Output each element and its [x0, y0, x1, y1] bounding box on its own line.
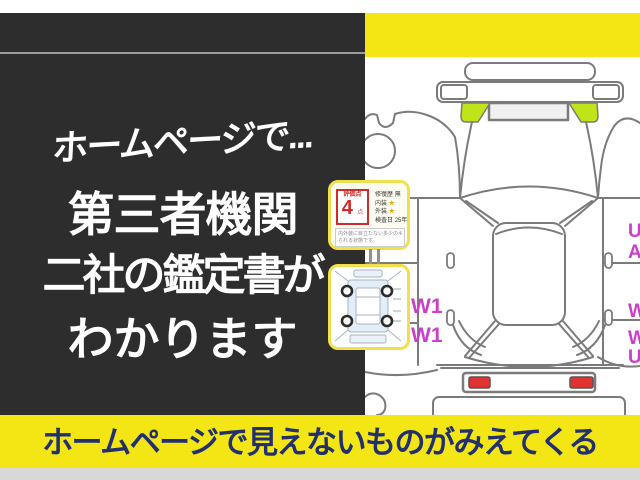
- hood-rear-arc: [460, 187, 598, 199]
- damage-mark-u-top: U: [628, 221, 640, 242]
- hood-edge-right: [586, 122, 598, 198]
- front-bumper-top: [465, 63, 595, 80]
- headlight-left: [441, 85, 467, 99]
- rating-row-interior: 内装 ★: [375, 200, 409, 209]
- score-unit: 点: [357, 210, 363, 216]
- mini-roof: [356, 288, 380, 324]
- headline-line-4: わかります: [0, 303, 365, 369]
- rating-row-exterior: 外装 ★: [375, 208, 409, 217]
- rating-certificate-card: 評価点 4 点 修復歴 無 内装 ★ 外装 ★ 検査日 25年 内外装に目立たな…: [328, 180, 410, 250]
- mini-wheel-rl: [342, 316, 352, 326]
- damage-mark-w1-upper: W1: [411, 295, 443, 318]
- a-pillar-left-2: [466, 201, 498, 223]
- mini-rear-bumper: [350, 335, 386, 343]
- condition-note-line2: られる状態です。: [338, 238, 402, 245]
- a-pillar-left: [460, 198, 493, 226]
- rating-rows: 修復歴 無 内装 ★ 外装 ★ 検査日 25年: [375, 191, 409, 225]
- headline-line-3: 二社の鑑定書が: [0, 241, 365, 303]
- damage-mark-w-1: W: [628, 301, 640, 322]
- score-value: 4: [342, 197, 353, 219]
- mini-front-bumper: [354, 270, 382, 277]
- rear-bumper: [433, 397, 625, 415]
- tail-light-left: [469, 377, 490, 388]
- fender-right: [598, 118, 640, 198]
- door-handle-left-front: [447, 253, 454, 268]
- mini-wheel-fl: [342, 286, 352, 296]
- hood-edge-left: [460, 122, 472, 198]
- roof-panel: [493, 223, 565, 325]
- door-handle-right-front: [605, 253, 612, 268]
- c-pillar-right: [563, 321, 593, 356]
- a-pillar-right-2: [560, 201, 592, 223]
- score-box: 評価点 4 点: [336, 189, 369, 225]
- card-connector-right: [377, 249, 380, 265]
- rocker-wave-left: [365, 370, 437, 375]
- condition-note-line1: 内外装に目立たない多少のキズ: [338, 231, 402, 238]
- rating-row-repair: 修復歴 無: [375, 191, 409, 200]
- windshield-cowl: [489, 103, 568, 120]
- headlight-right: [593, 85, 619, 99]
- bottom-gray-strip: [0, 468, 640, 480]
- mini-wheel-fr: [382, 286, 392, 296]
- damage-mark-a: A: [628, 242, 640, 263]
- wheel-arch-rear-left: [365, 393, 385, 415]
- damage-mark-w1-lower: W1: [411, 324, 443, 347]
- c-pillar-left: [465, 321, 495, 356]
- highlight-panel-right: [569, 103, 598, 122]
- mini-wheel-rr: [382, 316, 392, 326]
- top-yellow-band: [365, 13, 640, 57]
- a-pillar-right: [565, 198, 598, 226]
- door-handle-left-rear: [447, 310, 454, 325]
- card-connector-left: [369, 249, 372, 265]
- promo-image: W1 W1 U A W W U ホームページで... 第三者機関 二社の鑑定書が…: [0, 0, 640, 480]
- headline-line-1: ホームページで...: [0, 103, 366, 174]
- banner-text: ホームページで見えないものがみえてくる: [42, 425, 598, 460]
- tail-light-right: [570, 377, 593, 388]
- divider-line: [0, 52, 365, 54]
- damage-mark-u-bottom: U: [628, 347, 640, 368]
- mini-car-diagram: [331, 267, 405, 345]
- damage-mark-w-2: W: [628, 328, 640, 349]
- rating-row-date: 検査日 25年: [375, 217, 409, 226]
- condition-note: 内外装に目立たない多少のキズ られる状態です。: [335, 228, 405, 247]
- bottom-banner: ホームページで見えないものがみえてくる: [0, 415, 640, 468]
- door-handle-right-rear: [605, 310, 612, 325]
- diagram-thumbnail-card: [328, 264, 410, 350]
- wheel-arch-left: [365, 134, 395, 168]
- highlight-panel-left: [461, 103, 490, 122]
- headline-panel: ホームページで... 第三者機関 二社の鑑定書が わかります: [0, 13, 365, 415]
- headline-line-2: 第三者機関: [0, 176, 365, 245]
